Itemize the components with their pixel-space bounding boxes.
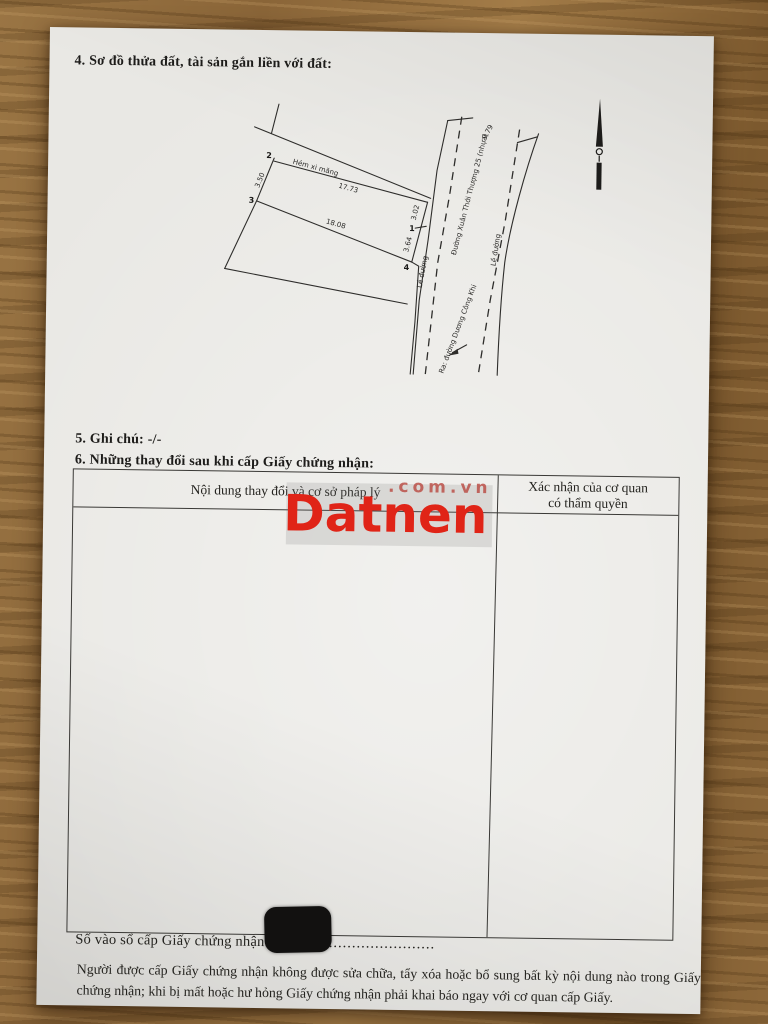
feature-labels: Hẻm xi măng Lề đường Lề đường Đường Xuân… [289,130,504,375]
point-1-label: 1 [409,224,415,233]
boundary-lines [223,103,432,374]
datnen-watermark-logo: Datnen [283,488,488,541]
point-2-label: 2 [266,151,272,160]
top-edge-measure: 17.73 [338,182,359,195]
registry-number-line: Số vào sổ cấp Giấy chứng nhận:..........… [75,931,435,953]
point-3-label: 3 [249,196,255,205]
table-header-right-line2: có thẩm quyền [528,494,648,511]
notes-label: 5. Ghi chú: [75,431,144,447]
right-lower-measure: 3.64 [402,235,414,253]
section5-line: 5. Ghi chú: -/- [75,431,161,448]
table-header-right: Xác nhận của cơ quan có thẩm quyền [497,475,678,515]
road-edge-right-label: Lề đường [490,233,503,266]
table-header-right-line1: Xác nhận của cơ quan [528,479,648,496]
redaction-blob [264,906,332,953]
certificate-warning-note: Người được cấp Giấy chứng nhận không đượ… [76,959,701,1009]
certificate-page: 4. Sơ đồ thửa đất, tài sản gắn liền với … [36,27,714,1014]
cadastral-diagram: 2 3 4 1 17.73 18.08 3.50 3.02 3.64 9.79 … [44,27,714,436]
right-upper-measure: 3.02 [410,204,422,221]
registry-label: Số vào sổ cấp Giấy chứng nhận: [75,931,269,950]
road-edge-left-label: Lề đường [416,255,430,288]
notes-value: -/- [148,432,162,447]
point-4-label: 4 [404,263,410,272]
north-arrow-icon [595,99,603,190]
exit-note-label: Ra: đường Dương Công Khi [437,283,478,374]
